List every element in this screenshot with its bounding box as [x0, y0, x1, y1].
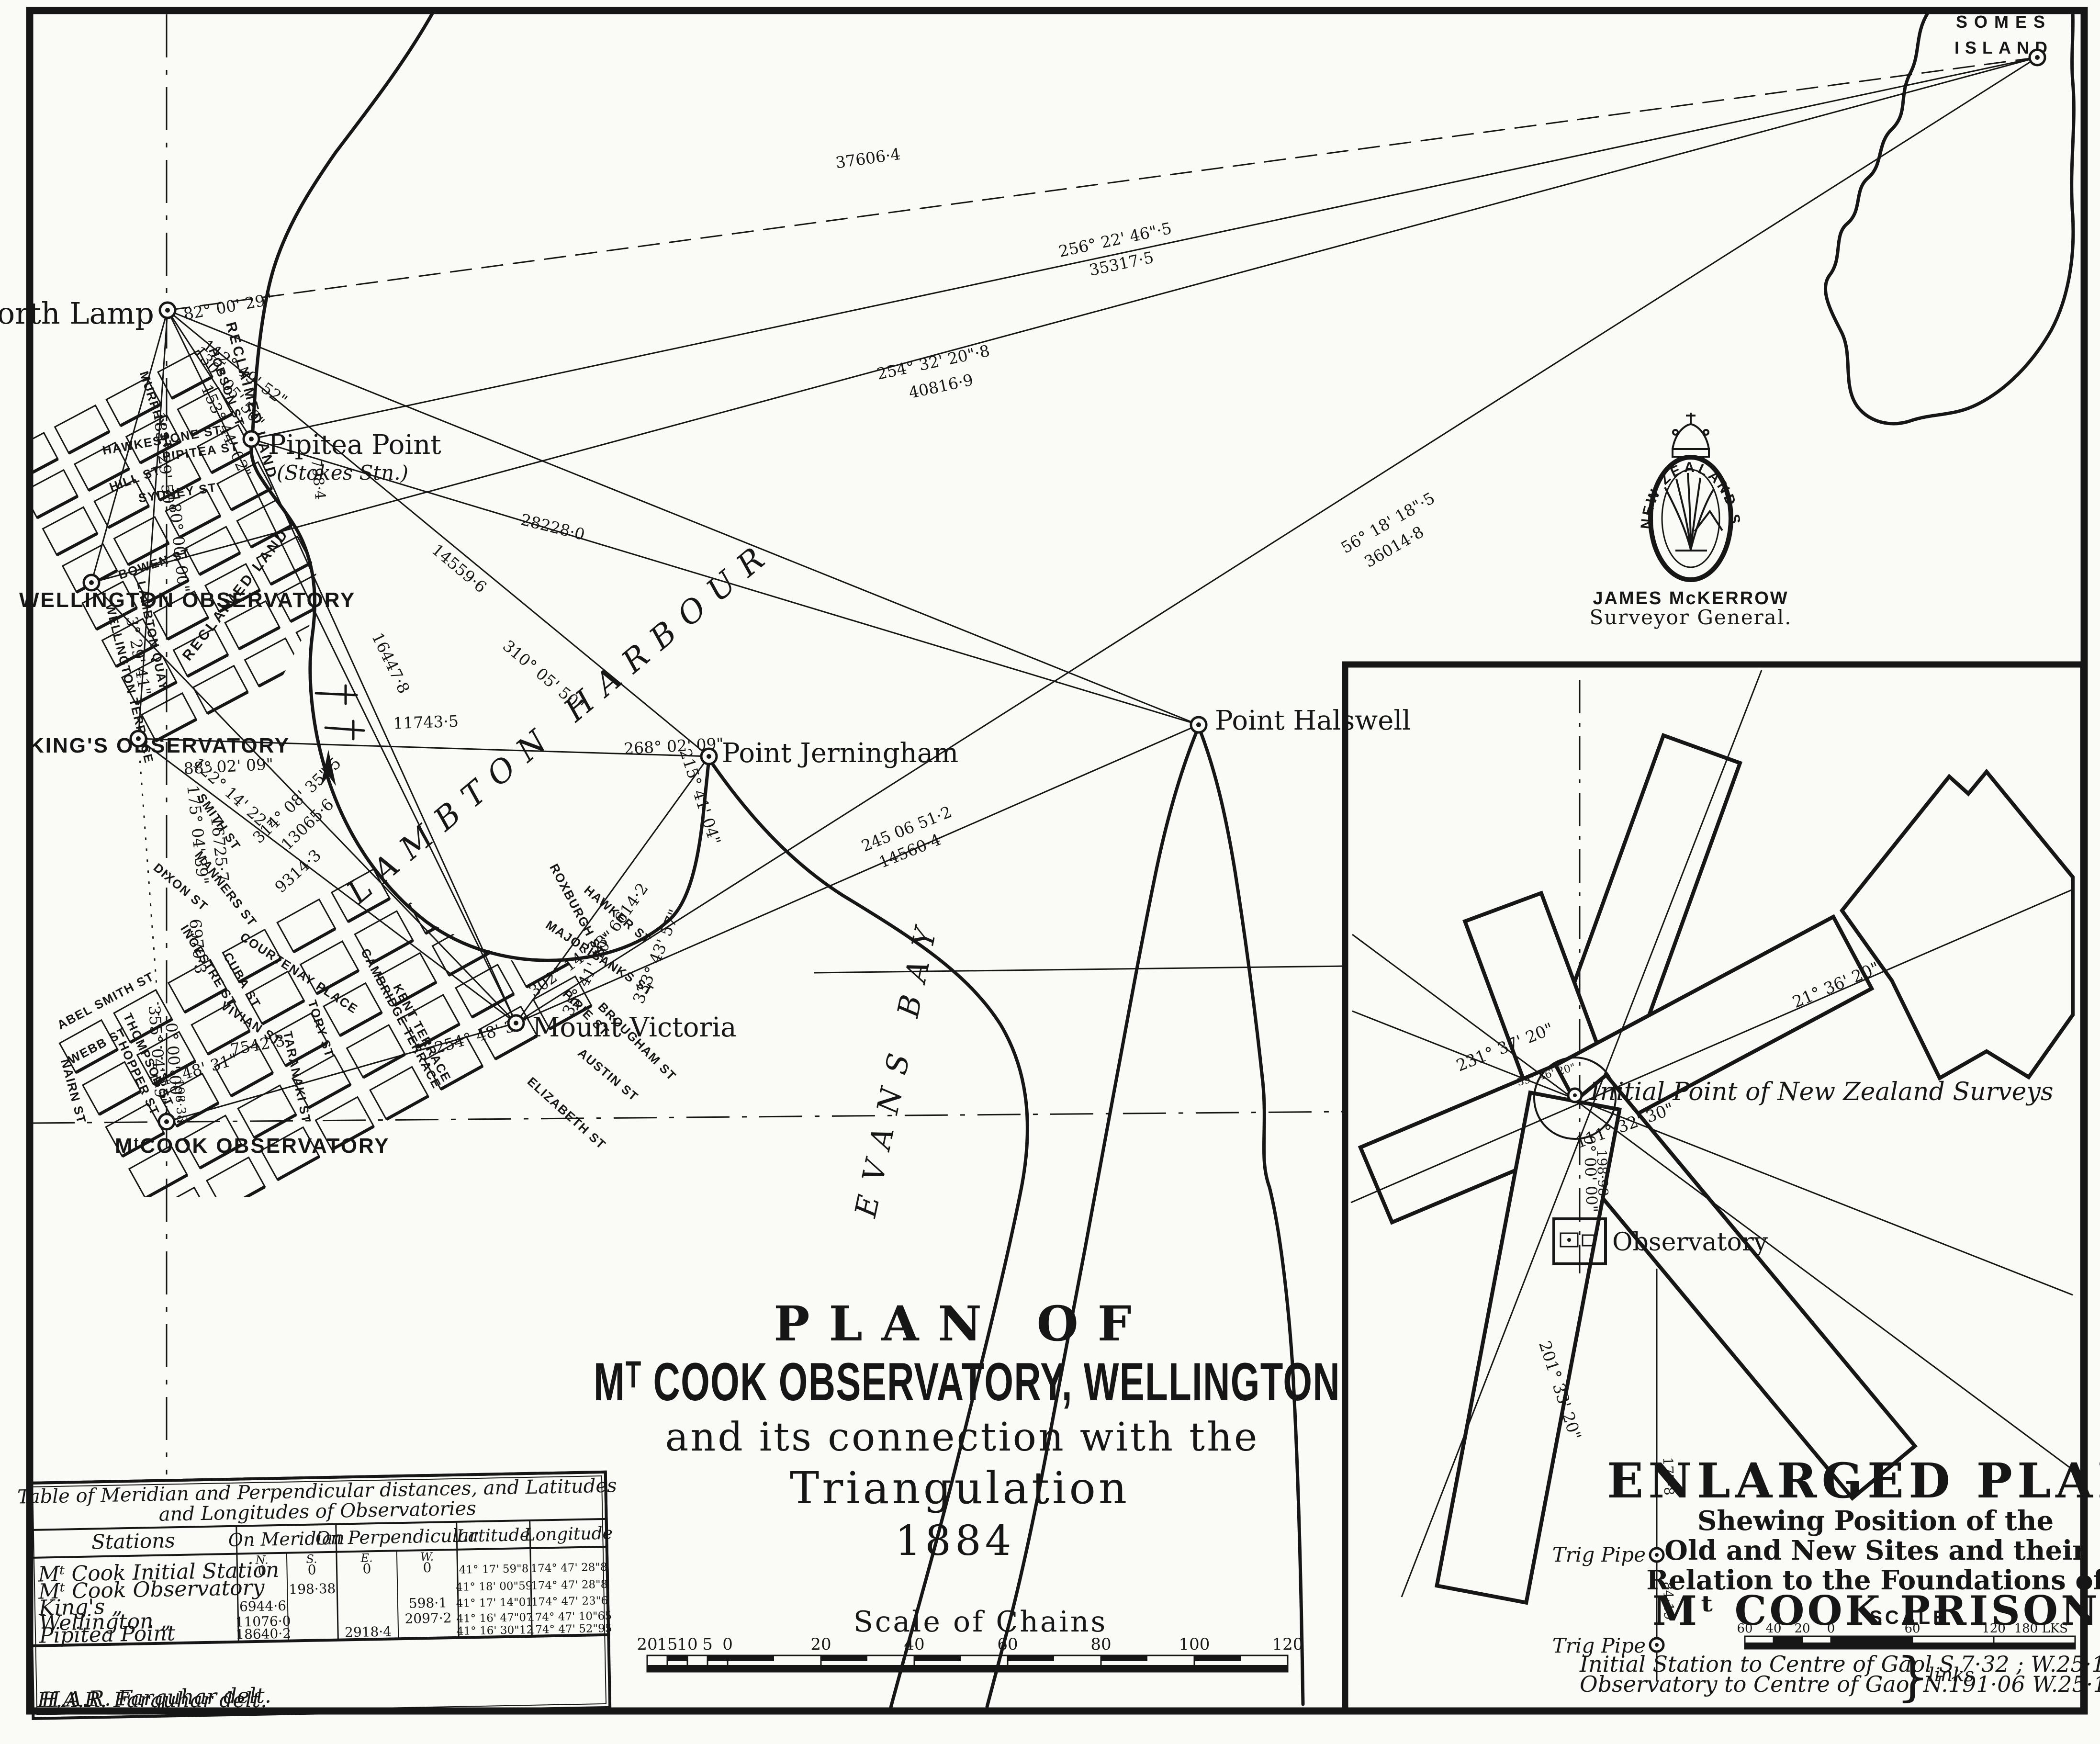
map-canvas: 2015105020406080100120 Table of Meridian… [0, 0, 2100, 1744]
table-cell: 2097·2 [404, 1610, 452, 1627]
kings-observatory-station [131, 731, 146, 746]
station-label-point-halswell: Point Halswell [1215, 705, 1411, 736]
inset-title: ENLARGED PLAN [1607, 1452, 2100, 1509]
table-column-header: On Perpendicular [315, 1525, 479, 1549]
title-year: 1884 [895, 1517, 1015, 1565]
inset-note-unit: links [1928, 1664, 1974, 1686]
inset-label-initial-point: Initial Point of New Zealand Surveys [1590, 1078, 2054, 1106]
table-cell: 174° 47' 52"95 [528, 1622, 612, 1636]
inset-subtitle1: Shewing Position of the [1697, 1505, 2054, 1537]
table-column-header: Stations [91, 1529, 175, 1553]
inset-label-trig-pipe-2: Trig Pipe [1552, 1634, 1646, 1657]
station-label-mt-cook-observatory: MᵗCOOK OBSERVATORY [115, 1134, 390, 1158]
title-main: Mᵀ COOK OBSERVATORY, WELLINGTON [594, 1352, 1340, 1412]
title-sub1: and its connection with the [665, 1415, 1259, 1460]
table-cell: 174° 47' 10"65 [528, 1610, 612, 1624]
table-cell: 0 [423, 1560, 431, 1575]
inset-distance-label: 177·8 [1660, 1457, 1677, 1496]
table-cell: 174° 47' 28"8 [531, 1578, 608, 1592]
scale-tick-label: 120 [1272, 1635, 1303, 1654]
table-column-header: Latitude [456, 1525, 530, 1546]
table-cell: 41° 18' 00"59 [456, 1580, 533, 1594]
trig-pipe-2 [1650, 1638, 1663, 1652]
station-sublabel-stokes-stn: (Stokes Stn.) [277, 461, 408, 484]
station-label-kings-observatory: KING'S OBSERVATORY [29, 734, 290, 757]
table-cell: 174° 47' 28"8 [530, 1561, 607, 1575]
scale-tick-label: 10 [677, 1635, 697, 1654]
table-cell: 41° 17' 59"8 [459, 1563, 529, 1576]
table-cell: 41° 16' 47"07 [456, 1611, 533, 1625]
table-cell: 6944·6 [239, 1598, 287, 1615]
inset-distance-label: 198·98 [1594, 1149, 1611, 1196]
scale-tick-label: 20 [637, 1635, 657, 1654]
table-cell: 174° 47' 23"6 [531, 1595, 608, 1609]
table-cell: 2918·4 [345, 1624, 392, 1641]
scale-tick-label: 100 [1179, 1635, 1210, 1654]
station-label-north-lamp: North Lamp [0, 296, 154, 331]
map-sheet: 2015105020406080100120 Table of Meridian… [0, 0, 2100, 1744]
title-plan-of: PLAN OF [774, 1295, 1150, 1352]
inset-scale-label: SCALE [1869, 1607, 1949, 1628]
table-cell: 198·38 [289, 1581, 336, 1598]
inset-label-trig-pipe-1: Trig Pipe [1552, 1543, 1646, 1566]
scale-tick-label: 15 [657, 1635, 677, 1654]
scale-tick-label: 20 [810, 1635, 831, 1654]
inset-subtitle2: Old and New Sites and their [1664, 1535, 2087, 1566]
mt-cook-observatory-station [159, 1114, 174, 1129]
distances-table: Table of Meridian and Perpendicular dist… [17, 1472, 621, 1719]
table-column-header: Longitude [523, 1524, 613, 1545]
wellington-observatory-station [84, 575, 99, 590]
point-jerningham-station [701, 749, 717, 764]
seal-title: Surveyor General. [1589, 606, 1792, 629]
table-row-station: Pipitea Point [39, 1621, 176, 1648]
north-lamp-station [160, 303, 175, 318]
inset-note2: Observatory to Centre of Gaol N.191·06 W… [1580, 1671, 2100, 1697]
somes-island-station [2030, 50, 2045, 65]
mount-victoria-station [508, 1015, 524, 1031]
island-label-somes: SOMES [1956, 12, 2052, 32]
table-cell: 598·1 [409, 1595, 448, 1611]
trig-pipe-1 [1650, 1548, 1663, 1562]
point-halswell-station [1191, 717, 1206, 732]
table-cell: 41° 16' 30"12 [457, 1624, 534, 1638]
inset-label-observatory: Observatory [1612, 1228, 1768, 1257]
station-label-point-jerningham: Point Jerningham [722, 738, 958, 769]
title-sub2: Triangulation [790, 1463, 1130, 1514]
initial-point-marker [1568, 1089, 1582, 1102]
scale-tick-label: 0 [722, 1635, 733, 1654]
pipitea-point-station [244, 431, 259, 447]
table-cell: 0 [362, 1561, 371, 1576]
table-cell: 0 [307, 1562, 316, 1578]
scale-title: Scale of Chains [853, 1605, 1108, 1639]
inset-distance-label: 84·19 [1660, 1581, 1677, 1620]
scale-tick-label: 5 [702, 1635, 713, 1654]
table-cell: 18640·2 [236, 1626, 291, 1643]
station-label-pipitea-point: Pipitea Point [268, 429, 441, 461]
table-cell: 41° 17' 14"01 [456, 1596, 533, 1610]
distance-label: 11743·5 [393, 712, 459, 733]
inset-note-brace: } [1896, 1646, 1930, 1707]
